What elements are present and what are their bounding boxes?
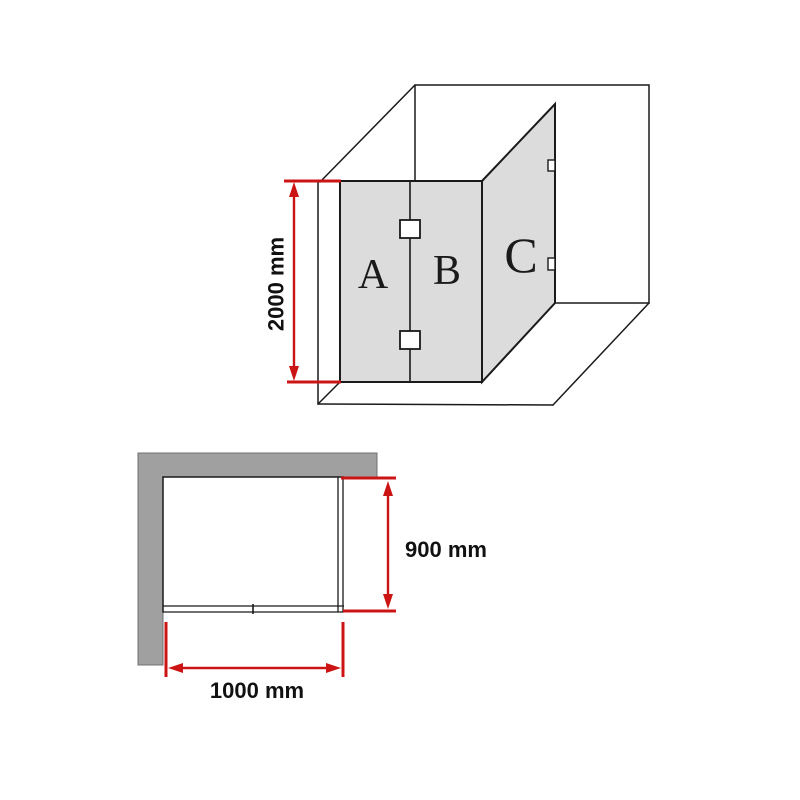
- depth-dimension-label: 900 mm: [405, 537, 487, 562]
- panel-a-label: A: [358, 252, 389, 298]
- width-dimension-label: 1000 mm: [210, 678, 304, 703]
- arrow-right-icon: [326, 663, 341, 673]
- enclosure-outline: [163, 477, 344, 614]
- arrow-up-icon: [383, 481, 393, 496]
- plan-view: 900 mm 1000 mm: [138, 453, 487, 703]
- floor-front-edge: [318, 404, 553, 405]
- floor-right-edge: [553, 303, 649, 405]
- hinge-top-icon: [400, 220, 420, 238]
- height-dimension-label: 2000 mm: [264, 237, 289, 331]
- wall-bracket-top-icon: [548, 160, 555, 171]
- hinge-bottom-icon: [400, 331, 420, 349]
- wall-bracket-bottom-icon: [548, 258, 555, 270]
- arrow-up-icon: [289, 182, 299, 197]
- height-dimension: 2000 mm: [264, 181, 342, 382]
- arrow-down-icon: [383, 594, 393, 609]
- panel-b-label: B: [433, 248, 461, 294]
- shower-screen-dimension-diagram: A B C 2000 mm: [0, 0, 800, 800]
- width-dimension: 1000 mm: [166, 622, 343, 703]
- wall-l-shape: [138, 453, 377, 665]
- arrow-down-icon: [289, 366, 299, 381]
- panel-c-label: C: [504, 227, 537, 283]
- depth-dimension: 900 mm: [341, 478, 487, 611]
- diagram-canvas: A B C 2000 mm: [0, 0, 800, 800]
- perspective-view: A B C 2000 mm: [264, 85, 650, 405]
- arrow-left-icon: [168, 663, 183, 673]
- left-wall-bottom-edge: [318, 382, 340, 404]
